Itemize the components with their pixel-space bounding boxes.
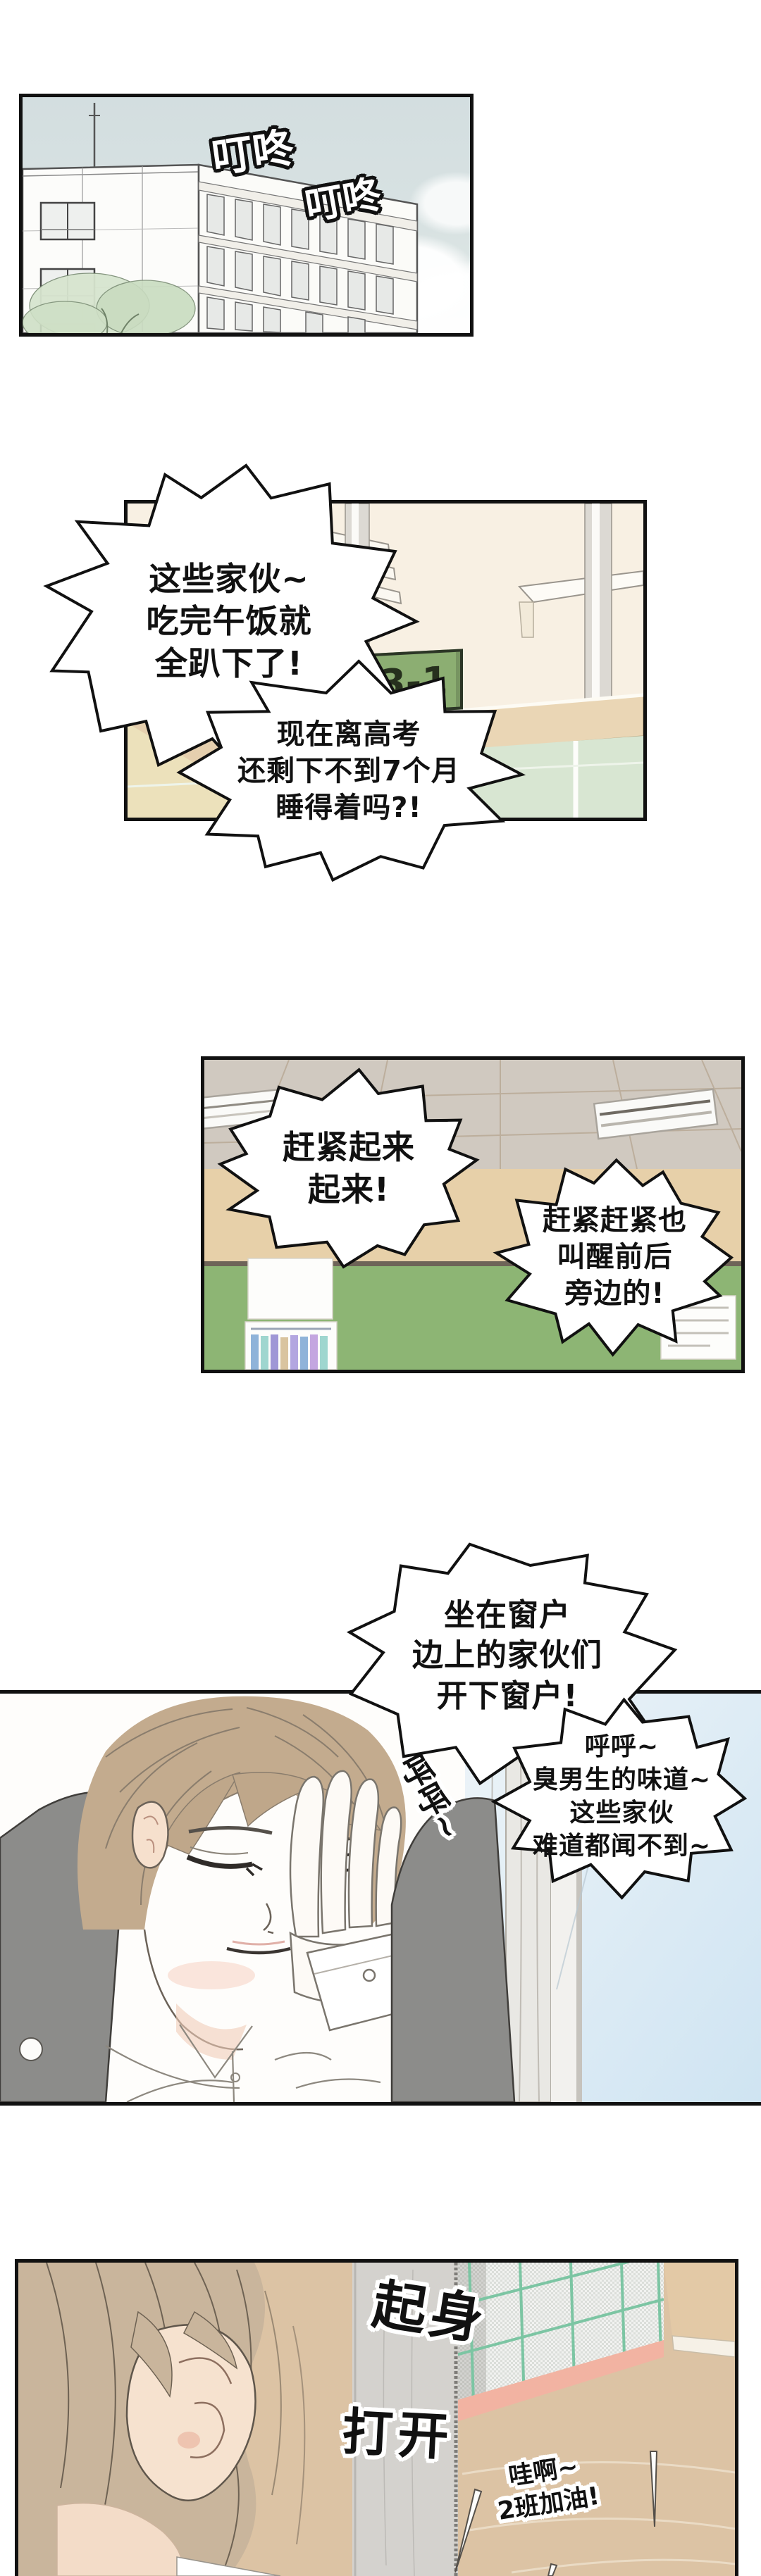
shelf-icon [519, 571, 643, 637]
bubble-line: 起来! [308, 1169, 390, 1211]
closed-eye [187, 1857, 252, 1866]
bubble-line: 坐在窗户 [444, 1595, 571, 1635]
speech-bubble-teacher-2: 现在离高考 还剩下不到7个月 睡得着吗?! [173, 655, 525, 887]
speech-bubble-girl: 呼呼~ 臭男生的味道~ 这些家伙 难道都闻不到~ [488, 1692, 755, 1903]
bubble-line: 难道都闻不到~ [533, 1830, 711, 1863]
antenna-icon [89, 103, 100, 168]
lips [227, 1949, 290, 1953]
bubble-line: 吃完午饭就 [147, 601, 312, 643]
bubble-line: 这些家伙~ [149, 558, 309, 601]
bubble-line: 赶紧起来 [283, 1127, 415, 1169]
nose [264, 1903, 273, 1933]
bubble-line: 叫醒前后 [557, 1239, 673, 1275]
bubble-line: 现在离高考 [277, 716, 421, 753]
eyelid-crease [190, 1847, 248, 1854]
ear-icon [132, 1802, 168, 1868]
bubble-line: 臭男生的味道~ [533, 1764, 711, 1797]
shirt [106, 2025, 380, 2102]
sfx-open: 打开 [340, 2390, 455, 2470]
bubble-line: 呼呼~ [585, 1731, 659, 1764]
bubble-line: 睡得着吗?! [276, 789, 421, 826]
neck-shadow [176, 2003, 247, 2060]
bubble-line: 还剩下不到7个月 [237, 753, 460, 789]
comic-page: { "page": {"width": 1080, "height": 3658… [0, 0, 761, 2576]
chart-paper [245, 1322, 337, 1370]
sfx-bell-1: 叮咚 [208, 114, 297, 184]
speech-bubble-teacher-4: 赶紧赶紧也 叫醒前后 旁边的! [490, 1155, 740, 1359]
bubble-line: 旁边的! [564, 1275, 664, 1312]
shirt-button [231, 2073, 240, 2082]
lip-tint [233, 1942, 285, 1944]
speech-bubble-teacher-3: 赶紧起来 起来! [211, 1065, 486, 1273]
bubble-line: 这些家伙 [569, 1797, 674, 1830]
jacket-button [20, 2038, 42, 2061]
far-wall [664, 2263, 735, 2357]
bubble-line: 赶紧赶紧也 [543, 1202, 687, 1239]
cheek-blush [168, 1961, 255, 1989]
bubble-line: 边上的家伙们 [412, 1635, 602, 1675]
